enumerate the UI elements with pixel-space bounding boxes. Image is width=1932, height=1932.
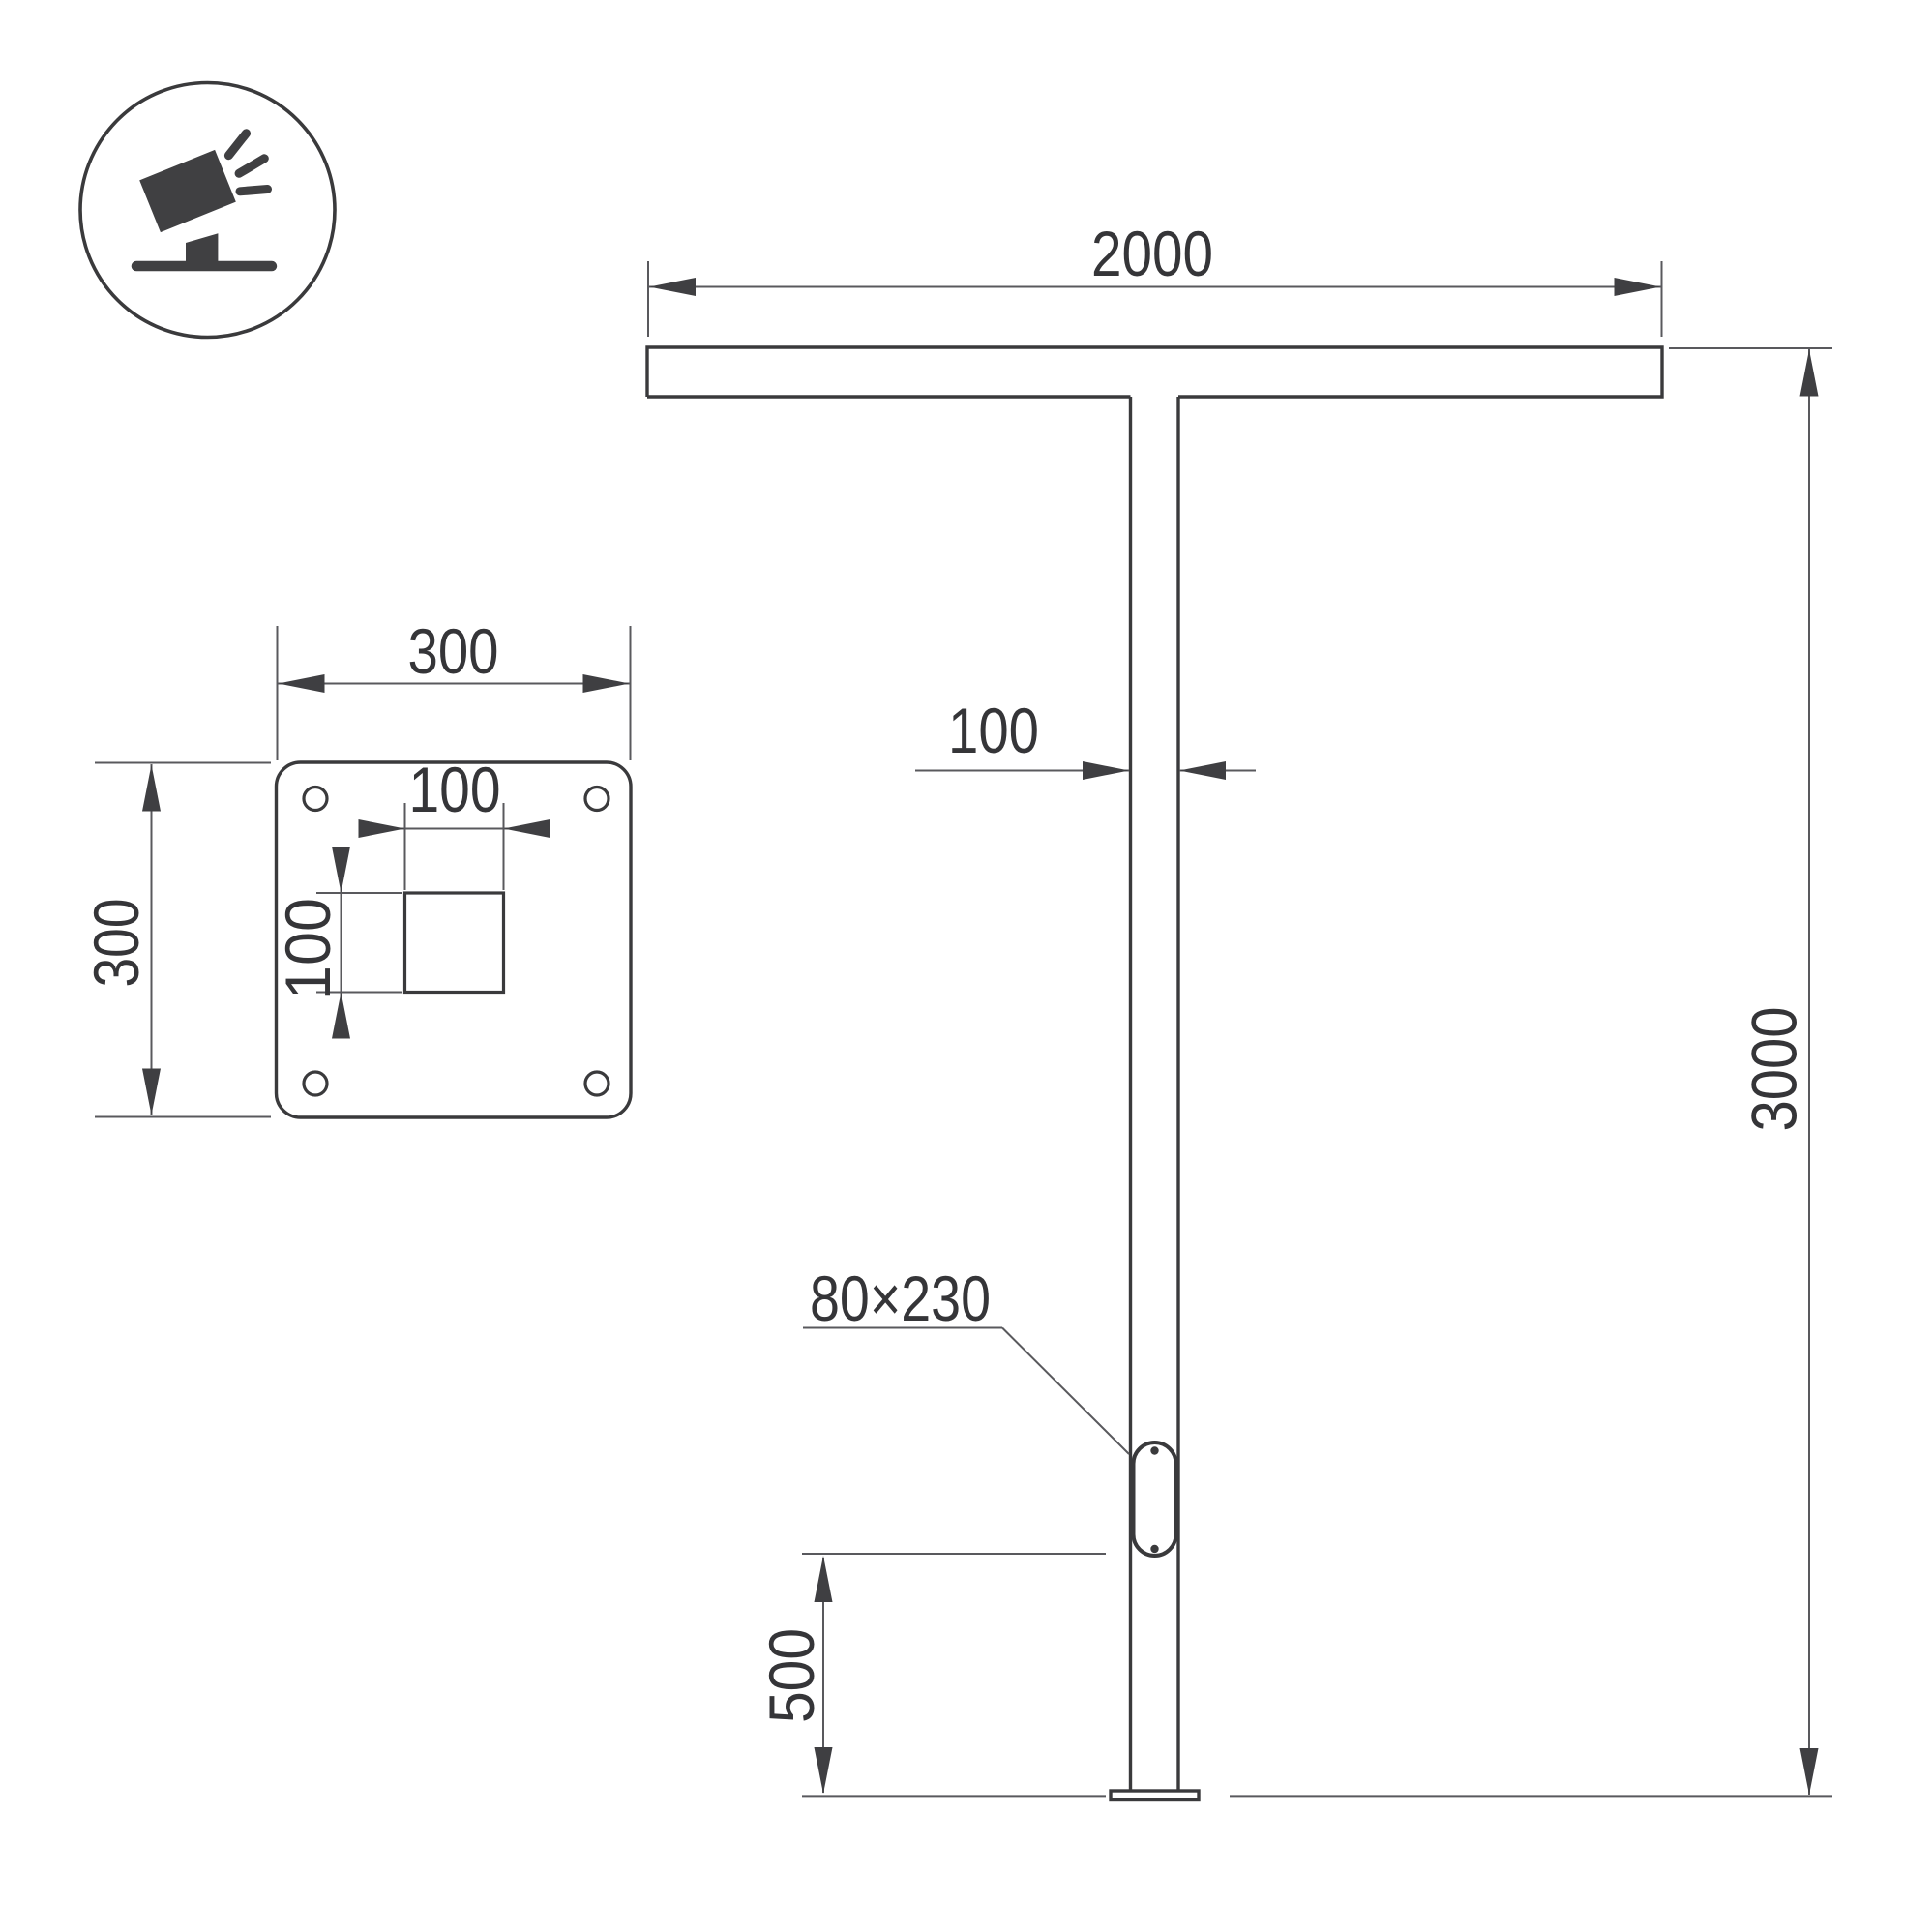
svg-text:300: 300	[408, 615, 499, 687]
svg-text:2000: 2000	[1091, 218, 1213, 289]
svg-text:500: 500	[756, 1628, 827, 1723]
svg-text:3000: 3000	[1739, 1007, 1810, 1132]
svg-text:80×230: 80×230	[810, 1263, 991, 1334]
svg-text:100: 100	[409, 754, 501, 825]
svg-text:100: 100	[272, 898, 343, 999]
svg-text:300: 300	[80, 899, 152, 988]
svg-text:100: 100	[948, 695, 1039, 766]
